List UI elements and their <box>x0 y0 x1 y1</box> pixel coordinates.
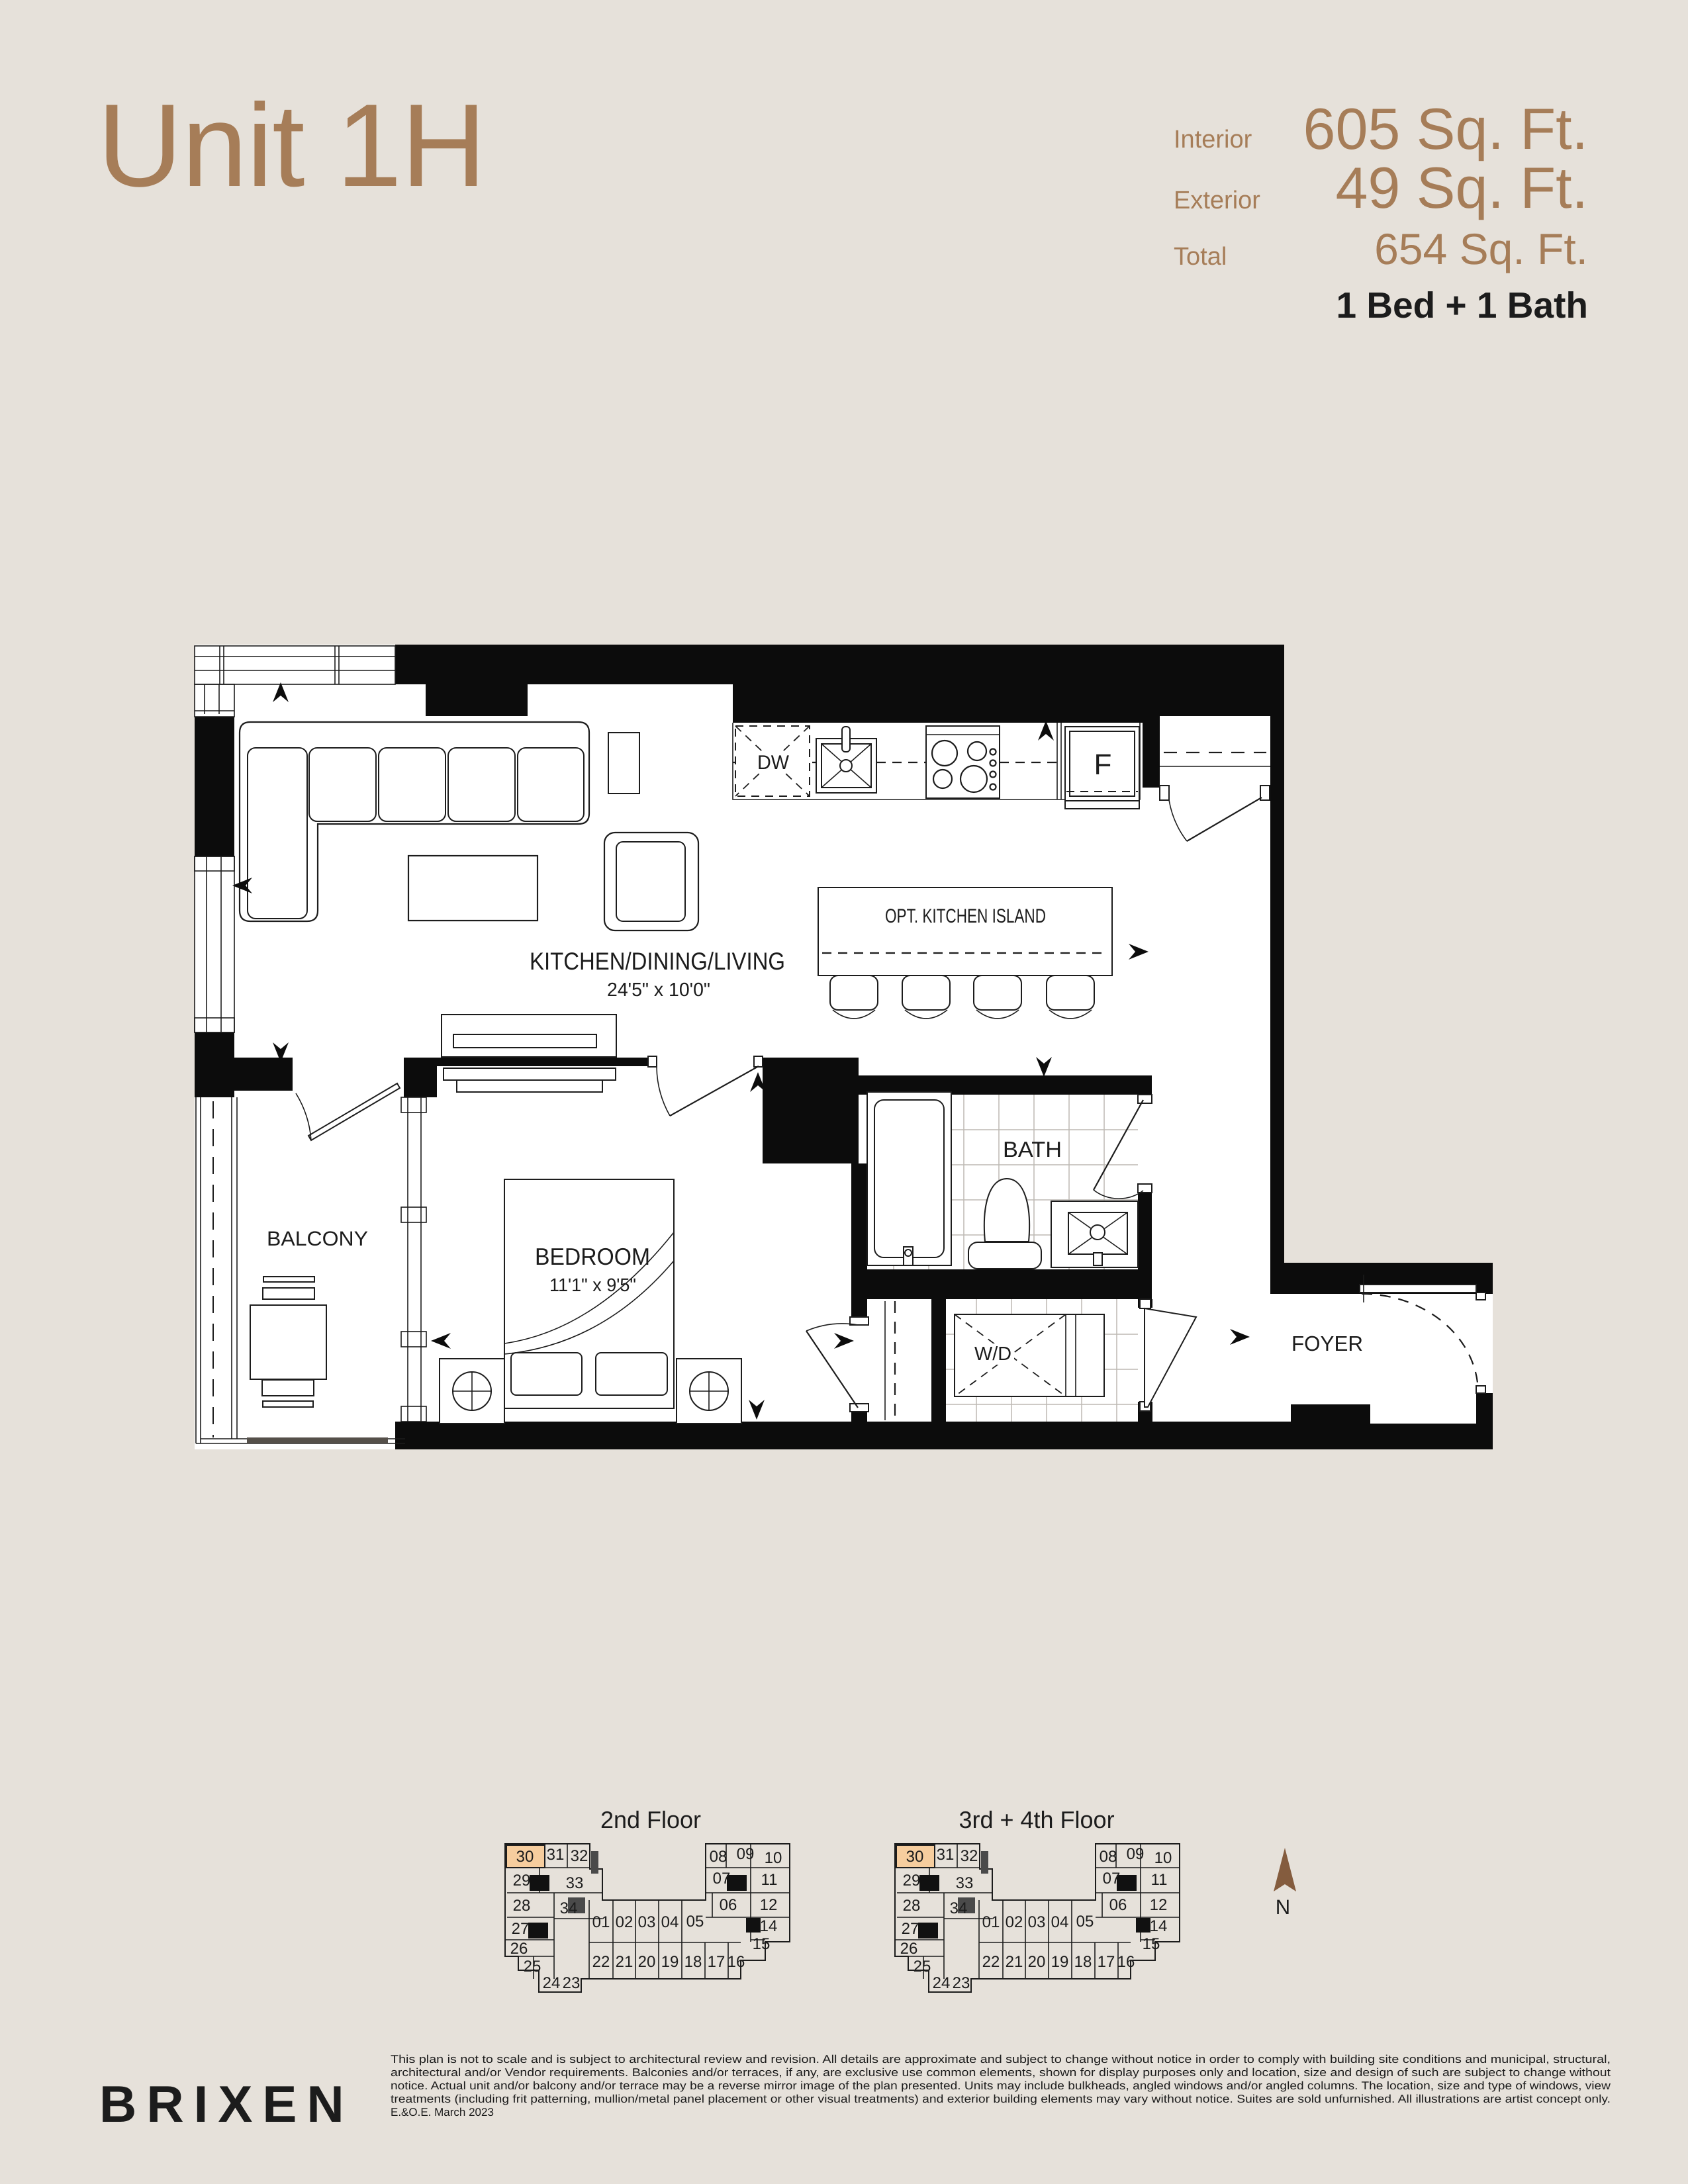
svg-text:2nd Floor: 2nd Floor <box>600 1806 701 1833</box>
svg-text:Exterior: Exterior <box>1174 187 1260 214</box>
svg-text:17: 17 <box>708 1953 726 1971</box>
svg-text:654 Sq. Ft.: 654 Sq. Ft. <box>1374 224 1588 273</box>
svg-text:07: 07 <box>713 1870 731 1888</box>
svg-text:31: 31 <box>547 1846 565 1864</box>
svg-text:W/D: W/D <box>974 1343 1011 1365</box>
svg-text:DW: DW <box>757 752 790 774</box>
svg-text:23: 23 <box>563 1974 581 1992</box>
svg-text:BALCONY: BALCONY <box>267 1227 368 1250</box>
svg-text:26: 26 <box>510 1940 528 1958</box>
svg-text:3rd + 4th Floor: 3rd + 4th Floor <box>959 1806 1114 1833</box>
svg-text:28: 28 <box>513 1897 531 1915</box>
svg-text:FOYER: FOYER <box>1291 1332 1363 1355</box>
svg-text:01: 01 <box>592 1913 610 1931</box>
svg-text:14: 14 <box>760 1917 778 1935</box>
svg-text:33: 33 <box>566 1874 584 1892</box>
svg-text:1 Bed + 1 Bath: 1 Bed + 1 Bath <box>1336 285 1588 326</box>
svg-text:BEDROOM: BEDROOM <box>535 1243 650 1270</box>
svg-text:notice. Actual unit and/or bal: notice. Actual unit and/or balcony and/o… <box>391 2079 1611 2092</box>
svg-text:18: 18 <box>684 1953 702 1971</box>
svg-text:E.&O.E. March 2023: E.&O.E. March 2023 <box>391 2106 494 2118</box>
svg-text:32: 32 <box>571 1847 588 1865</box>
svg-text:This plan is not to scale and: This plan is not to scale and is subject… <box>391 2053 1611 2066</box>
svg-text:N: N <box>1276 1895 1290 1919</box>
svg-text:Total: Total <box>1174 243 1227 271</box>
svg-text:04: 04 <box>661 1913 679 1931</box>
svg-text:34: 34 <box>560 1899 578 1917</box>
svg-text:BATH: BATH <box>1003 1137 1062 1161</box>
svg-text:15: 15 <box>753 1935 771 1953</box>
svg-text:19: 19 <box>661 1953 679 1971</box>
svg-text:05: 05 <box>686 1913 704 1931</box>
svg-text:03: 03 <box>638 1913 656 1931</box>
svg-text:11'1" x 9'5": 11'1" x 9'5" <box>549 1275 636 1295</box>
svg-text:KITCHEN/DINING/LIVING: KITCHEN/DINING/LIVING <box>530 948 785 975</box>
svg-text:architectural and/or Vendor re: architectural and/or Vendor requirements… <box>391 2066 1611 2079</box>
svg-text:treatments (including frit pat: treatments (including frit patterning, m… <box>391 2093 1611 2105</box>
svg-text:Interior: Interior <box>1174 126 1252 154</box>
svg-text:22: 22 <box>592 1953 610 1971</box>
svg-text:F: F <box>1094 749 1112 781</box>
svg-text:24'5" x 10'0": 24'5" x 10'0" <box>607 979 710 1001</box>
svg-text:21: 21 <box>616 1953 633 1971</box>
svg-text:Unit 1H: Unit 1H <box>97 79 486 211</box>
svg-text:06: 06 <box>720 1896 737 1914</box>
svg-text:12: 12 <box>760 1896 778 1914</box>
svg-text:02: 02 <box>616 1913 633 1931</box>
svg-text:24: 24 <box>543 1974 561 1992</box>
svg-text:27: 27 <box>512 1920 530 1938</box>
svg-text:49 Sq. Ft.: 49 Sq. Ft. <box>1335 155 1588 220</box>
svg-text:25: 25 <box>524 1958 541 1976</box>
svg-text:29: 29 <box>513 1872 531 1889</box>
svg-text:08: 08 <box>710 1848 727 1866</box>
svg-text:BRIXEN: BRIXEN <box>99 2075 354 2133</box>
svg-text:20: 20 <box>638 1953 656 1971</box>
svg-text:OPT. KITCHEN ISLAND: OPT. KITCHEN ISLAND <box>885 905 1046 927</box>
svg-text:10: 10 <box>765 1849 782 1867</box>
svg-text:16: 16 <box>727 1953 745 1971</box>
svg-text:605 Sq. Ft.: 605 Sq. Ft. <box>1303 96 1588 161</box>
svg-text:09: 09 <box>737 1845 755 1863</box>
svg-text:11: 11 <box>761 1871 778 1889</box>
svg-text:30: 30 <box>516 1848 534 1866</box>
